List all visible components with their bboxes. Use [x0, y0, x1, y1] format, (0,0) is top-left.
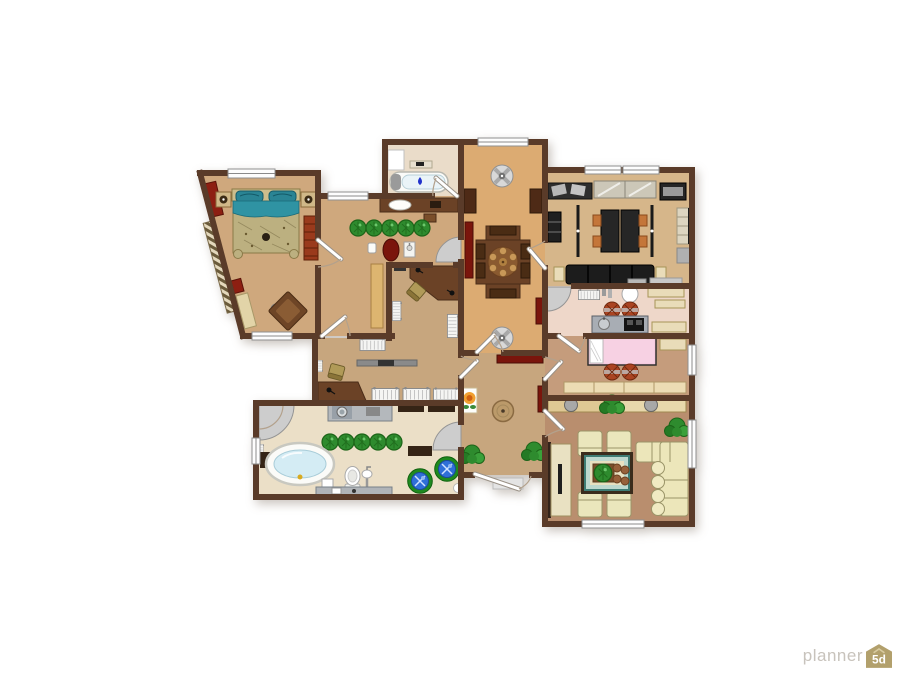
plant-row [350, 220, 430, 236]
planner5d-logo-badge: 5d [866, 644, 892, 668]
shelf [410, 161, 432, 168]
radiator [578, 289, 599, 300]
round-table [493, 401, 514, 422]
chair [521, 263, 530, 278]
nightstand-left [216, 192, 231, 207]
laundry-basket [383, 239, 399, 261]
wall-bar [357, 360, 417, 366]
window [582, 520, 644, 528]
watermark-brand-text: planner [803, 646, 863, 666]
shelf [648, 288, 684, 297]
cabinet-topright [660, 183, 686, 200]
desk [318, 382, 367, 403]
window [228, 169, 275, 178]
radiator [372, 387, 399, 401]
chair [476, 263, 485, 278]
tall-cabinet [371, 264, 383, 328]
stool-blue [408, 469, 433, 494]
window [688, 420, 696, 468]
shelf [652, 322, 686, 332]
counter-sink-stove [592, 316, 648, 333]
radiator-wall [317, 360, 323, 372]
dresser [564, 382, 686, 393]
dark-cabinet [408, 446, 432, 456]
stool-orange [622, 364, 638, 380]
wall-cabinet-left [464, 189, 476, 213]
plant-row [322, 434, 402, 450]
window [252, 332, 292, 340]
tv-stand [545, 442, 571, 518]
radiator [360, 338, 385, 351]
radiator-vertical [392, 301, 402, 320]
stool-orange [604, 364, 620, 380]
trash-bin [368, 243, 376, 253]
shelf [655, 300, 685, 308]
window [252, 438, 260, 464]
window [623, 166, 659, 174]
sliding-wardrobe [594, 181, 656, 198]
planner5d-watermark: planner 5d [803, 644, 892, 668]
table-plant [594, 464, 612, 482]
washer-counter [328, 404, 392, 421]
window [688, 345, 696, 375]
floor-plan-canvas: planner 5d [0, 0, 900, 675]
shelf [660, 339, 686, 350]
floor-plan [0, 0, 900, 675]
small-sink [404, 242, 415, 257]
dark-sofa [554, 265, 666, 284]
window [478, 138, 528, 146]
pink-bed [588, 337, 656, 365]
red-cabinet-bottom [536, 298, 543, 324]
nightstand-right [301, 192, 316, 207]
vanity-sink [380, 198, 458, 212]
radiator [433, 387, 458, 400]
radiator-vertical [447, 314, 459, 337]
lamp-rail-right [651, 205, 654, 257]
red-sideboard [465, 222, 473, 278]
flower-picture [462, 388, 477, 413]
window [585, 166, 621, 174]
stool-blue [435, 457, 460, 482]
bench-top [490, 226, 516, 235]
office-chair-seat [639, 236, 647, 247]
coffee-table [581, 452, 633, 494]
office-chair-seat [593, 236, 601, 247]
chair [476, 244, 485, 259]
watermark-badge-text: 5d [872, 653, 886, 667]
office-chair-seat [639, 215, 647, 226]
red-buffet [497, 355, 543, 363]
office-chair [328, 363, 346, 381]
bench-bottom [490, 289, 516, 298]
lamp-rail-left [577, 205, 580, 257]
washer-box [388, 150, 404, 170]
desk-unit-topleft [548, 183, 592, 199]
ceiling-fan-top [491, 165, 513, 187]
radiator [403, 387, 430, 401]
office-chair-seat [593, 215, 601, 226]
double-bed [232, 189, 300, 259]
bookshelf [548, 212, 561, 242]
window [328, 192, 368, 200]
wall-cabinet-right [530, 189, 542, 213]
armchair [578, 492, 602, 517]
armchair [607, 492, 631, 517]
rubber-duck [298, 475, 303, 480]
